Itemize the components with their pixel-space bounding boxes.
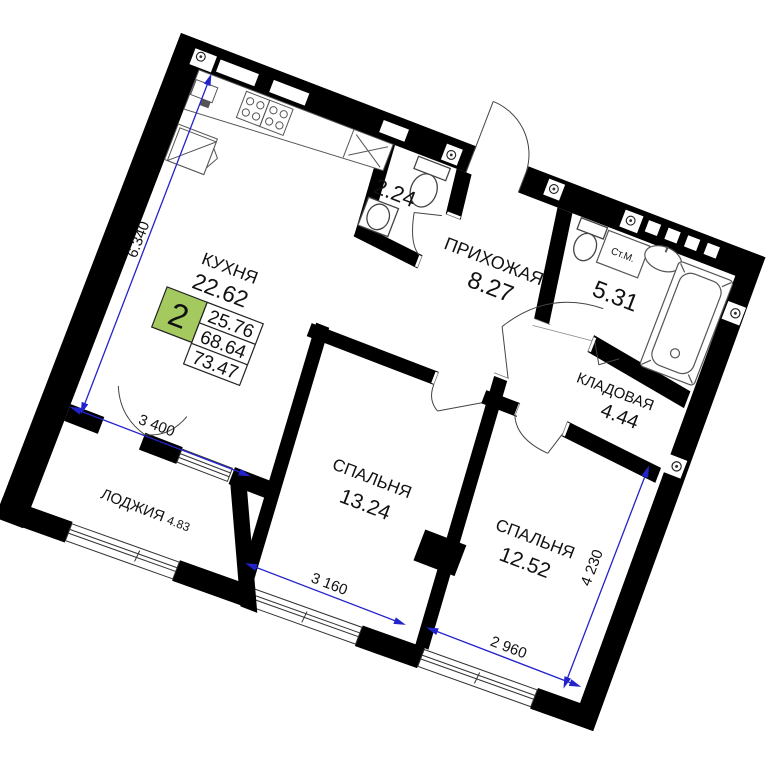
svg-text:ЛОДЖИЯ 4.83: ЛОДЖИЯ 4.83 <box>98 486 192 536</box>
svg-text:5.31: 5.31 <box>589 276 642 318</box>
svg-text:3 160: 3 160 <box>309 570 350 599</box>
svg-text:3 400: 3 400 <box>136 411 177 440</box>
svg-text:4 230: 4 230 <box>577 547 606 588</box>
svg-text:2 960: 2 960 <box>488 633 529 662</box>
